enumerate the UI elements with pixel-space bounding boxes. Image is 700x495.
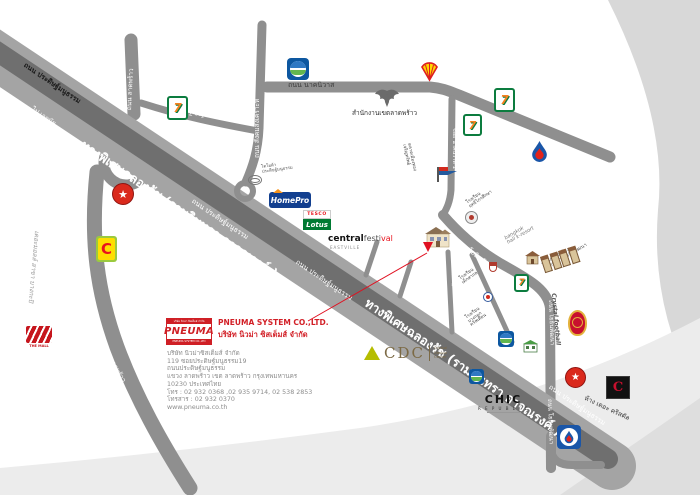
caltex-logo-icon: ★ (565, 367, 586, 388)
label-nakniwat-h: ถนน นาคนิวาส (288, 82, 334, 89)
label-yothin-3: ถนน โยธินพัฒนา (546, 399, 554, 444)
homepro-text: HomePro (271, 196, 309, 205)
seven-glyph: 7 (173, 101, 181, 115)
address-line: โทรสาร : 02 932 0370 (167, 396, 312, 404)
pneuma-logo: บริษัท นิวม่า ซิสเต็มส์ จำกัด PNEUMA PNE… (166, 318, 212, 345)
tesco-lotus-logo: TESCO Lotus (303, 210, 331, 230)
ptt-station-logo-icon (557, 425, 581, 449)
pneuma-logo-name: PNEUMA (164, 326, 214, 337)
cdc-triangle-icon (364, 346, 380, 360)
cdc-text: CDC (384, 344, 425, 362)
company-heading-en: PNEUMA SYSTEM CO.,LTD. (218, 318, 329, 327)
school-crest-icon (465, 211, 478, 224)
school-shield-icon (489, 262, 497, 272)
road-nakniwat (267, 87, 610, 157)
crystal-football-crest-icon (568, 310, 587, 336)
central-text: central (328, 234, 364, 244)
company-address: บริษัท นิวม่าซิสเต็มส์ จำกัด 119 ซอยประด… (167, 350, 312, 412)
the-crystal-logo-icon: C (606, 376, 630, 399)
caltex-star: ★ (571, 373, 580, 383)
address-line: www.pneuma.co.th (167, 404, 312, 412)
seven-eleven-icon: 7 (463, 114, 482, 136)
caltex-star: ★ (118, 189, 128, 200)
bangchak-logo-icon (469, 369, 484, 384)
chic-tagline-line (487, 412, 521, 413)
red-arrow-icon (423, 242, 433, 252)
seven-eleven-icon: 7 (167, 96, 188, 120)
company-heading-th: บริษัท นิวม่า ซิสเต็มส์ จำกัด (218, 329, 308, 341)
seven-eleven-icon: 7 (494, 88, 515, 112)
homepro-roof-icon (273, 189, 283, 193)
bigc-letter: C (101, 240, 112, 258)
bangchak-logo-icon (498, 331, 514, 347)
ptt-logo-icon (531, 140, 548, 163)
central-festival-logo: centralfestival EASTVILLE (328, 226, 386, 250)
chic-text: CHIC (478, 393, 529, 406)
label-district-office: สำนักงานเขตลาดพร้าว (352, 110, 417, 117)
lotus-text: Lotus (306, 221, 328, 229)
seven-glyph: 7 (500, 93, 508, 107)
road-soi-b (400, 262, 411, 296)
the-crystal-letter: C (613, 380, 623, 395)
road-soi19 (448, 252, 452, 332)
road-uturn-loop (237, 183, 253, 199)
seven-glyph: 7 (469, 119, 477, 132)
festival-text: festi (364, 234, 381, 243)
eastville-text: EASTVILLE (330, 245, 386, 250)
festival-val-text: val (381, 234, 393, 243)
bangchak-logo-icon (287, 58, 309, 80)
pneuma-logo-bottom-text: PNEUMA SYSTEM CO.,LTD (167, 339, 211, 344)
cdc-sub3: Center (434, 355, 447, 360)
address-line: 10230 ประเทศไทย (167, 381, 312, 389)
the-mall-text: THE MALL (26, 344, 52, 348)
green-building-icon (522, 339, 539, 353)
the-mall-logo: THE MALL (26, 326, 52, 348)
caltex-logo-icon: ★ (112, 183, 134, 205)
homepro-logo: HomePro (269, 192, 311, 208)
seven-eleven-icon: 7 (514, 274, 529, 292)
address-line: บริษัท นิวม่าซิสเต็มส์ จำกัด (167, 350, 312, 358)
bigc-logo-icon: C (96, 236, 117, 262)
label-sangkhom: ถนน สังคมสงเคราะห์ (254, 99, 261, 158)
address-line: แขวง ลาดพร้าว เขต ลาดพร้าว กรุงเทพมหานคร (167, 373, 312, 381)
location-map: ถนน ประดิษฐ์มนูธรรม ไป เอกมัย ทางพิเศษฉล… (0, 0, 700, 495)
label-soi-nakniwat1: ซอย นาคนิวาส 1 (450, 128, 456, 169)
cdc-logo: CDC Crystal Design Center (364, 344, 447, 362)
chic-republic-logo: CHIC R E P U B L I C (478, 393, 529, 413)
toyota-logo-icon (248, 175, 262, 185)
shell-logo-icon (418, 60, 441, 82)
tesco-text: TESCO (307, 212, 327, 217)
garuda-emblem-icon (374, 88, 400, 109)
house-icon (524, 250, 541, 265)
seven-glyph: 7 (518, 278, 524, 288)
republic-text: R E P U B L I C (478, 406, 529, 411)
cdc-divider (429, 346, 430, 361)
school-badge-icon (483, 292, 493, 302)
address-line: ถนนประดิษฐ์มนูธรรม (167, 365, 312, 373)
the-mall-stripes-icon (26, 326, 52, 343)
